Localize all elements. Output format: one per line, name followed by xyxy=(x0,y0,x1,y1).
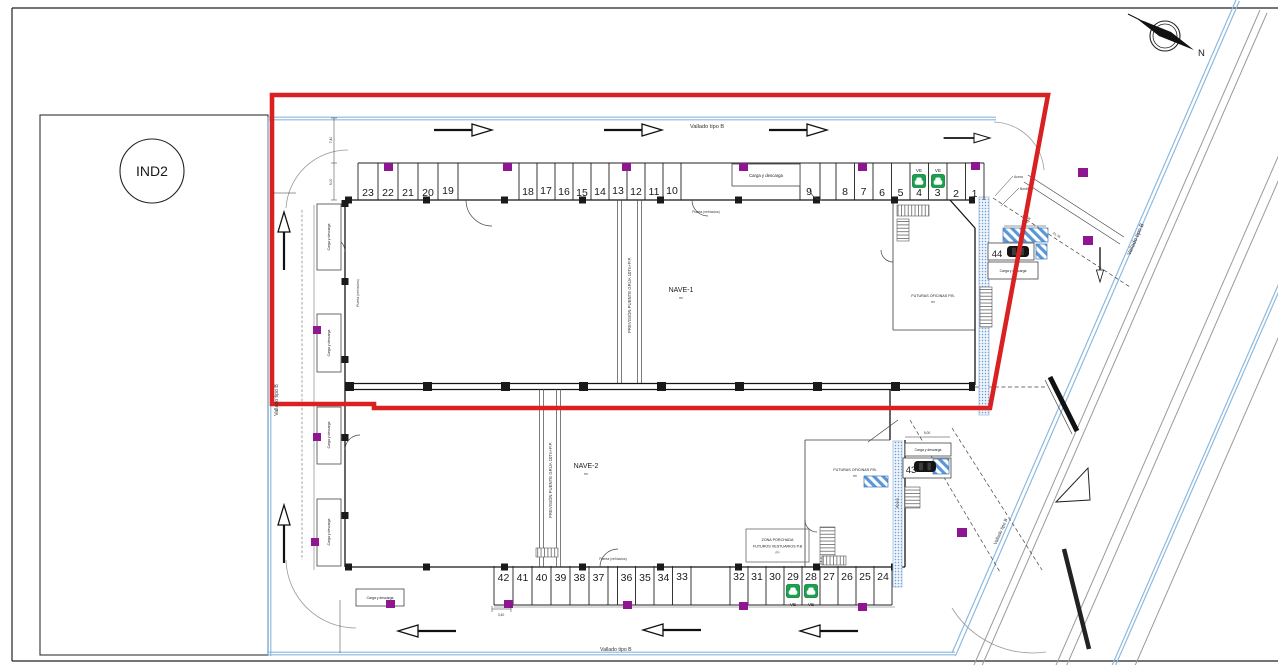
stall-number: 9 xyxy=(806,186,812,198)
loading-zone-label: Carga y descarga xyxy=(749,173,784,178)
dimension-label: 5,00 xyxy=(329,179,333,186)
dimension-label: 21,76 xyxy=(1052,231,1061,239)
acera-callout: Acera xyxy=(1014,175,1023,179)
ind2-label: IND2 xyxy=(136,163,168,179)
stall-number: 3 xyxy=(935,187,941,199)
fence-label-left: Vallado tipo B xyxy=(274,384,280,416)
door-label: Puerta (vehículos) xyxy=(599,557,627,561)
dimension-label: 3,40 xyxy=(498,613,505,617)
nave1-label: NAVE-1 xyxy=(669,287,694,294)
traffic-arrow-right xyxy=(944,133,990,143)
fence-label-diagonal: Vallado tipo B xyxy=(1127,223,1146,257)
stall-number: 5 xyxy=(898,187,904,199)
nave2-area: m² xyxy=(584,472,589,476)
stall-number: 31 xyxy=(751,571,763,583)
red-project-boundary xyxy=(272,95,1048,408)
parking-row-bottom: 42 41 40 39 38 37 36 35 34 33 32 31 30 2… xyxy=(494,566,892,607)
north-compass: N xyxy=(1128,14,1205,59)
traffic-arrow-up xyxy=(278,212,290,270)
zona-porchada-line1: ZONA PORCHADA xyxy=(762,538,795,542)
stairs-icon xyxy=(905,487,920,508)
traffic-arrow-right xyxy=(434,124,492,136)
compass-needle xyxy=(1136,18,1194,50)
stall-number: 26 xyxy=(841,571,853,583)
stall-number: 36 xyxy=(621,572,633,584)
stall-number: 8 xyxy=(842,186,848,198)
door-label: Puerta (vehículos) xyxy=(692,210,720,214)
stall-number: 23 xyxy=(362,187,374,199)
stall-number: 34 xyxy=(658,572,670,584)
stall-number: 1 xyxy=(972,188,978,200)
stall-number: 30 xyxy=(769,571,781,583)
traffic-arrow-right xyxy=(769,124,827,136)
loading-zone-label: Carga y descarga xyxy=(327,330,331,357)
nave2-offices-label: FUTURAS OFICINAS P.B. xyxy=(833,468,876,472)
zona-porchada: ZONA PORCHADA FUTUROS VESTUARIOS P.B m² xyxy=(746,529,809,562)
north-label: N xyxy=(1198,48,1205,59)
stall-number: 2 xyxy=(953,188,959,200)
ev-charger-icon xyxy=(932,175,945,188)
traffic-arrow-left xyxy=(643,624,701,636)
nave1-building: PREVISIÓN PUENTE GRÚA 10Tn+P.P. NAVE-1 m… xyxy=(330,188,975,567)
ev-charger-icon xyxy=(787,585,800,598)
roadway-curbs xyxy=(286,122,1124,653)
nave2-building: PREVISIÓN PUENTE GRÚA 10Tn+P.P. NAVE-2 m… xyxy=(345,389,905,567)
loading-zone-label: Carga y descarga xyxy=(367,596,394,600)
nave2-crane-corridor: PREVISIÓN PUENTE GRÚA 10Tn+P.P. xyxy=(540,389,561,567)
stall-number: 37 xyxy=(593,572,605,584)
ev-stall-label: VE xyxy=(935,168,941,173)
nave1-crane-corridor: PREVISIÓN PUENTE GRÚA 10Tn+P.P. xyxy=(618,200,642,383)
nave2-offices-area: m² xyxy=(853,474,858,478)
stall-number: 24 xyxy=(877,571,889,583)
left-loading-docks: Carga y descarga Carga y descarga Carga … xyxy=(317,204,341,566)
entrance-gates xyxy=(1045,377,1090,649)
stall-number: 13 xyxy=(612,185,624,197)
stall-number: 14 xyxy=(594,186,606,198)
stall-number: 40 xyxy=(536,572,548,584)
stall-number: 39 xyxy=(555,572,567,584)
zona-porchada-area: m² xyxy=(776,551,781,555)
nave1-offices-label: FUTURAS OFICINAS P.B. xyxy=(911,294,954,298)
plot-ind2: IND2 xyxy=(40,115,268,655)
stall-number: 29 xyxy=(787,571,799,583)
stall-number: 20 xyxy=(422,187,434,199)
site-plan-drawing: IND2 xyxy=(0,0,1278,665)
traffic-arrow-left xyxy=(800,625,858,637)
stall-number: 22 xyxy=(382,187,394,199)
stall-number-44: 44 xyxy=(992,249,1003,260)
stall-number: 19 xyxy=(442,185,454,197)
ev-charger-icon xyxy=(805,585,818,598)
loading-zone-label: Carga y descarga xyxy=(327,519,331,546)
ev-stall-label: VE xyxy=(808,602,814,607)
door-label: Puerta (vehículos) xyxy=(356,279,360,307)
ev-charger-icon xyxy=(913,175,926,188)
traffic-arrow-left xyxy=(398,625,456,637)
traffic-arrow-up xyxy=(278,505,290,563)
stairs-icon xyxy=(822,556,846,565)
bottom-loading-zone: Carga y descarga xyxy=(356,589,404,606)
nave1-offices-area: m² xyxy=(931,300,936,304)
loading-zone-label: Carga y descarga xyxy=(915,448,942,452)
stall-number: 4 xyxy=(916,187,922,199)
party-wall xyxy=(345,384,975,390)
loading-zone-label: Carga y descarga xyxy=(327,224,331,251)
acera-label: Acera xyxy=(896,497,900,508)
stall-number: 28 xyxy=(805,571,817,583)
nave1-area: m² xyxy=(679,296,684,300)
stairs-icon xyxy=(536,548,558,557)
stairs-icon xyxy=(897,219,909,241)
nave2-crane-label: PREVISIÓN PUENTE GRÚA 10Tn+P.P. xyxy=(548,442,553,518)
traffic-arrow-right xyxy=(604,124,662,136)
stall-number: 21 xyxy=(402,187,414,199)
ev-stall-label: VE xyxy=(790,602,796,607)
stall-number: 38 xyxy=(574,572,586,584)
stairs-icon xyxy=(897,205,929,216)
stall-number: 10 xyxy=(666,185,678,197)
stall-number: 11 xyxy=(649,186,660,198)
fence-blue-boundary xyxy=(268,0,1278,665)
stall-number: 16 xyxy=(558,186,570,198)
stall-number: 42 xyxy=(498,572,510,584)
stall-number: 18 xyxy=(522,186,534,198)
site-plan-canvas: IND2 xyxy=(0,0,1278,665)
parking-space-43-zone: Carga y descarga 43 5,00 xyxy=(864,431,951,508)
stall-number: 12 xyxy=(630,186,642,198)
ev-stall-label: VE xyxy=(916,168,922,173)
loading-zone-label: Carga y descarga xyxy=(327,422,331,449)
car-icon xyxy=(914,461,936,472)
dimension-label: 5,00 xyxy=(924,431,931,435)
nave2-label: NAVE-2 xyxy=(574,463,599,470)
stall-number: 41 xyxy=(517,572,529,584)
fence-label-bottom: Vallado tipo B xyxy=(600,647,632,653)
stall-number: 17 xyxy=(540,185,552,197)
stall-number: 25 xyxy=(859,571,871,583)
dimension-label: 7,40 xyxy=(329,137,333,144)
nave1-crane-label: PREVISIÓN PUENTE GRÚA 10Tn+P.P. xyxy=(627,257,632,333)
stall-number: 7 xyxy=(861,186,867,198)
traffic-arrow-down xyxy=(1096,247,1103,282)
stall-number: 6 xyxy=(879,187,885,199)
road-diagonals xyxy=(974,10,1278,665)
fence-label-top: Vallado tipo B xyxy=(690,124,724,130)
stall-number: 33 xyxy=(676,571,688,583)
stall-number: 35 xyxy=(639,572,651,584)
fence-labels: Vallado tipo B Vallado tipo B Vallado ti… xyxy=(274,124,1146,653)
zona-porchada-line2: FUTUROS VESTUARIOS P.B xyxy=(753,545,803,549)
stairs-icon xyxy=(980,287,992,327)
parking-row-top: 23 22 21 20 19 18 17 16 15 14 13 12 11 1… xyxy=(358,163,984,200)
stall-number: 27 xyxy=(823,571,835,583)
stall-number: 32 xyxy=(733,571,745,583)
stall-number: 15 xyxy=(576,187,588,199)
sheet-frame xyxy=(12,8,1278,661)
